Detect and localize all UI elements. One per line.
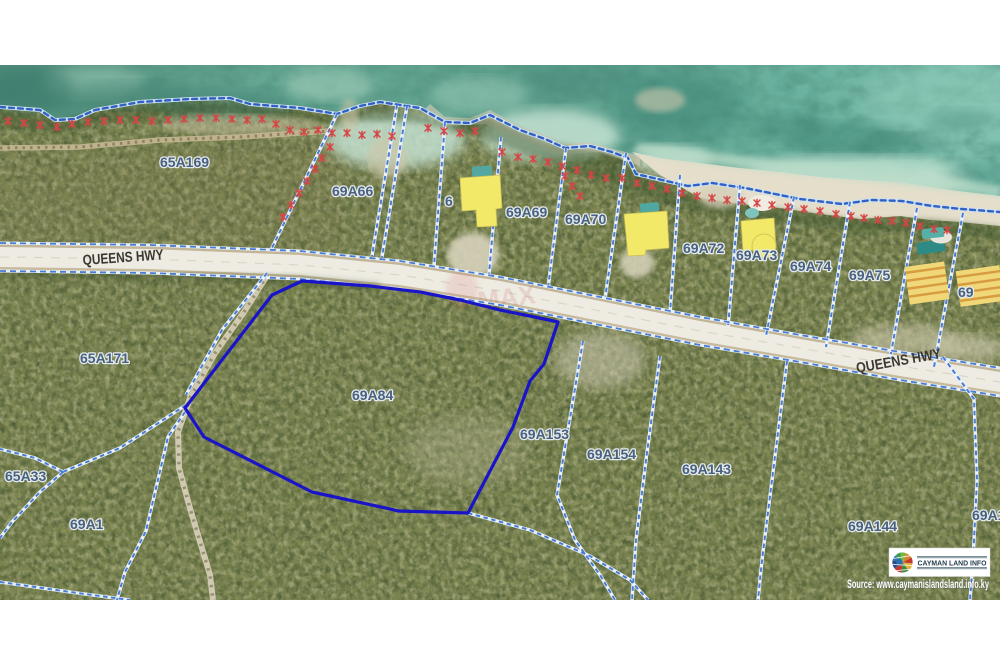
svg-text:69A153: 69A153: [520, 426, 569, 442]
svg-text:69A66: 69A66: [332, 183, 373, 199]
svg-text:CAYMAN LAND INFO: CAYMAN LAND INFO: [918, 558, 987, 567]
svg-text:69A1: 69A1: [972, 507, 1000, 523]
svg-text:69A74: 69A74: [790, 258, 831, 274]
svg-text:6: 6: [445, 193, 453, 209]
svg-text:69A143: 69A143: [682, 461, 731, 477]
svg-text:69A70: 69A70: [565, 211, 606, 227]
svg-text:69: 69: [958, 284, 974, 300]
svg-text:65A169: 65A169: [160, 154, 209, 170]
svg-text:65A171: 65A171: [80, 350, 129, 366]
svg-text:Source: www.caymanislandsland.: Source: www.caymanislandsland.info.ky: [847, 579, 989, 591]
svg-text:69A73: 69A73: [736, 247, 777, 263]
svg-text:69A75: 69A75: [849, 267, 890, 283]
svg-text:69A84: 69A84: [352, 387, 393, 403]
svg-text:69A144: 69A144: [848, 518, 897, 534]
svg-text:69A154: 69A154: [587, 446, 636, 462]
svg-text:69A69: 69A69: [506, 204, 547, 220]
svg-text:65A33: 65A33: [5, 468, 46, 484]
svg-text:69A1: 69A1: [70, 516, 104, 532]
svg-text:69A72: 69A72: [683, 240, 724, 256]
